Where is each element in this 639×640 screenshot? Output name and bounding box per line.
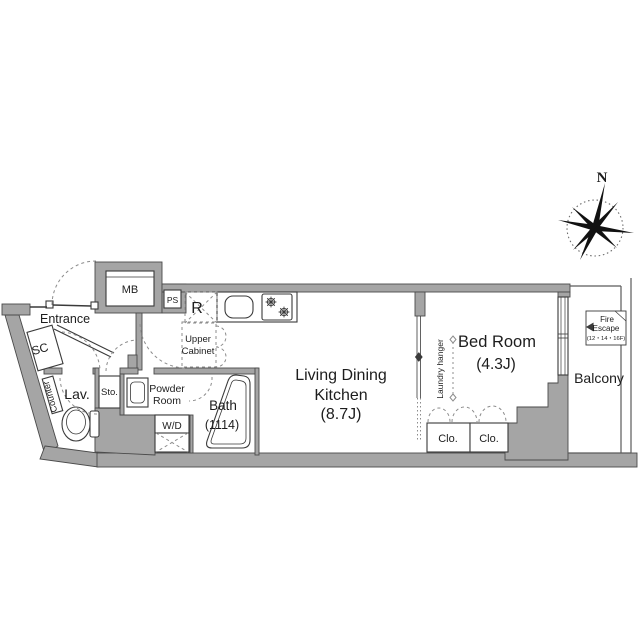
fire-escape-label-1: Fire bbox=[600, 315, 614, 324]
powder-room-label-1: Powder bbox=[149, 383, 185, 395]
refrigerator-label: R bbox=[191, 300, 203, 317]
ldk-label-1: Living Dining bbox=[295, 367, 387, 384]
stove bbox=[262, 294, 292, 320]
entrance-door-hinge-right bbox=[91, 302, 98, 309]
entrance-door-leaf bbox=[53, 305, 91, 306]
bath-label-2: (1114) bbox=[205, 418, 239, 432]
wall-top-right-corner bbox=[558, 292, 570, 297]
wall-top-band bbox=[162, 284, 570, 292]
toilet-tank bbox=[90, 411, 99, 437]
wall-wet-band-b bbox=[154, 368, 258, 374]
floor-plan-drawing: N Entrance SC Counter MB PS R Upper Cabi… bbox=[0, 0, 639, 640]
upper-cabinet-door-arcs bbox=[216, 326, 226, 367]
wall-powder-door-stub bbox=[128, 355, 137, 368]
shoe-cabinet-door-arc bbox=[62, 332, 100, 370]
partition-dotted-lines bbox=[418, 398, 421, 442]
bath-label-1: Bath bbox=[209, 398, 237, 413]
wall-partition-stub bbox=[415, 292, 425, 316]
pipe-space-label: PS bbox=[167, 295, 179, 305]
wall-bottom-left bbox=[40, 446, 98, 467]
wall-below-storage bbox=[95, 408, 155, 455]
meter-box-label: MB bbox=[122, 284, 139, 296]
balcony-label: Balcony bbox=[574, 370, 624, 386]
wall-bedroom-step bbox=[505, 375, 568, 460]
compass-icon: N bbox=[558, 170, 634, 260]
entrance-step-line-a bbox=[54, 329, 111, 357]
laundry-hanger-end-bottom bbox=[450, 394, 456, 401]
wall-wd-bath-divider bbox=[190, 415, 193, 453]
closet-left-label: Clo. bbox=[438, 433, 458, 445]
bedroom-label-1: Bed Room bbox=[458, 333, 536, 351]
hall-door-swing-arc bbox=[140, 324, 186, 368]
bedroom-label-2: (4.3J) bbox=[476, 356, 516, 373]
closet-bifold-arcs bbox=[428, 406, 506, 422]
compass-north-label: N bbox=[597, 170, 608, 186]
wall-top-left-spur bbox=[2, 304, 30, 315]
balcony-window bbox=[558, 297, 568, 375]
ldk-label-3: (8.7J) bbox=[321, 406, 362, 423]
toilet-seat bbox=[67, 410, 86, 434]
entrance-door-swing-arc bbox=[52, 261, 96, 305]
wall-bath-right bbox=[255, 368, 259, 455]
laundry-hanger-label: Laundry hanger bbox=[435, 339, 445, 399]
sliding-door-handle bbox=[416, 353, 422, 361]
lavatory-label: Lav. bbox=[64, 386, 89, 402]
powder-room-label-2: Room bbox=[153, 395, 181, 407]
balcony-boundary bbox=[568, 278, 631, 453]
entrance-label: Entrance bbox=[40, 312, 90, 326]
laundry-hanger-end-top bbox=[450, 336, 456, 343]
wall-wet-band-a bbox=[120, 368, 138, 374]
ldk-label-2: Kitchen bbox=[314, 387, 367, 404]
washer-dryer-label: W/D bbox=[162, 421, 181, 432]
fire-escape-label-3: (12・14・16F) bbox=[587, 336, 625, 342]
wall-sto-powder-divider bbox=[120, 374, 124, 415]
closet-right-label: Clo. bbox=[479, 433, 499, 445]
floor-plan-page: N Entrance SC Counter MB PS R Upper Cabi… bbox=[0, 0, 639, 640]
upper-cabinet-label-2: Cabinet bbox=[182, 346, 215, 357]
fire-escape-label-2: Escape bbox=[593, 324, 620, 333]
wall-lav-band-a bbox=[44, 368, 62, 374]
storage-label: Sto. bbox=[101, 387, 118, 398]
entrance-step-line-b bbox=[57, 325, 114, 353]
kitchen-sink bbox=[225, 296, 253, 318]
powder-sink-basin bbox=[131, 382, 145, 403]
upper-cabinet-label-1: Upper bbox=[185, 334, 211, 345]
